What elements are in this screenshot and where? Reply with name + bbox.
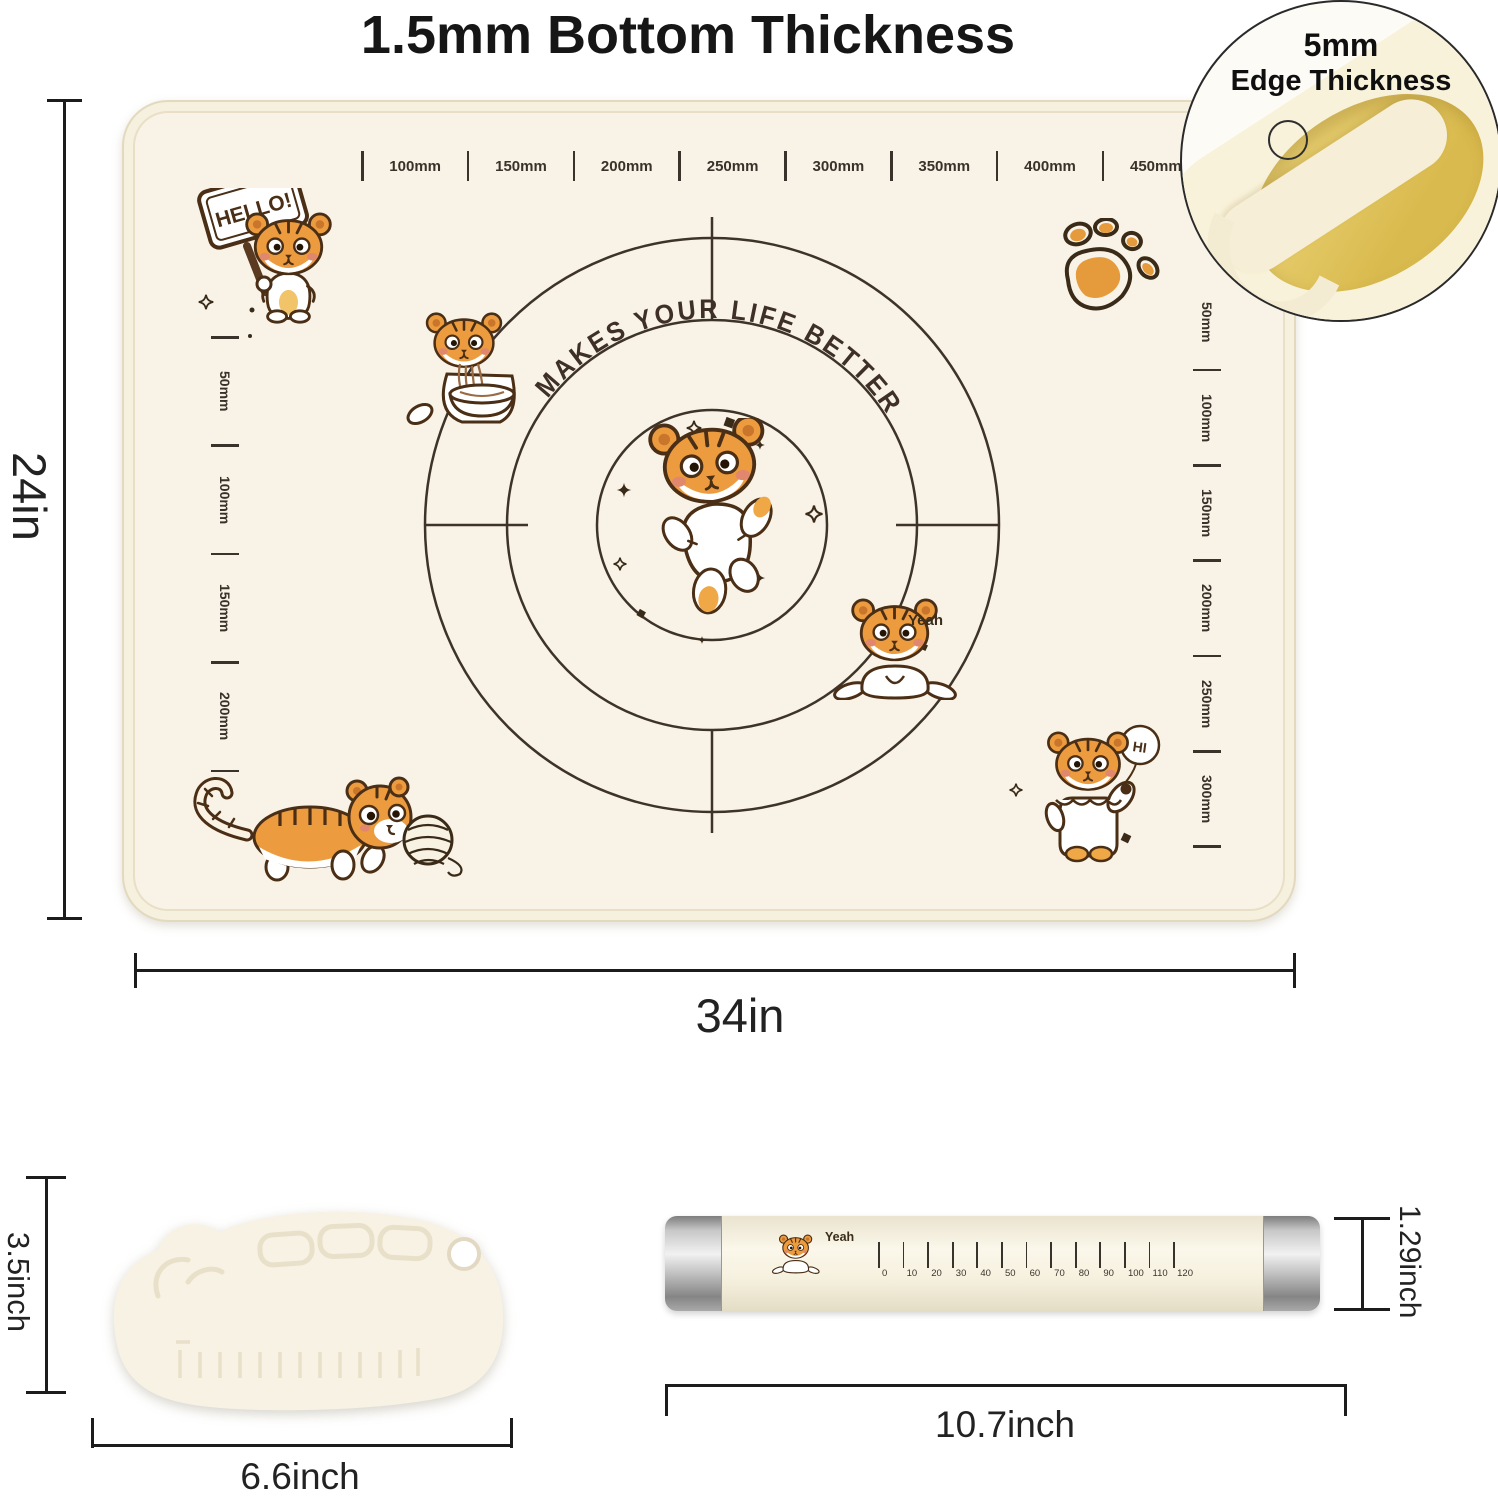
pin-ruler-tick — [1149, 1242, 1151, 1268]
ruler-label: 100mm — [364, 158, 467, 175]
dim-tick — [26, 1391, 66, 1394]
ruler-label: 150mm — [469, 158, 572, 175]
pin-ruler-tick — [1173, 1242, 1175, 1268]
ruler-tick — [1193, 845, 1221, 848]
pin-ruler-unit: 30 — [952, 1242, 977, 1288]
pin-ruler-unit: 100 — [1124, 1242, 1149, 1288]
ruler-label: 300mm — [787, 158, 890, 175]
dim-tick — [47, 917, 82, 920]
pin-ruler-unit: 80 — [1075, 1242, 1100, 1288]
dim-tick — [665, 1384, 668, 1416]
pin-ruler-unit: 0 — [878, 1242, 903, 1288]
pin-ruler-unit: 40 — [976, 1242, 1001, 1288]
ruler-label: 250mm — [681, 158, 784, 175]
mat-ruler-top: 100mm150mm200mm250mm300mm350mm400mm450mm — [361, 151, 1210, 181]
pin-ruler-number: 120 — [1177, 1268, 1193, 1279]
pin-ruler-tick — [903, 1242, 905, 1268]
edge-marker-circle — [1268, 120, 1308, 160]
dim-line-pin-diameter — [1361, 1218, 1364, 1310]
mat-ruler-left: 50mm100mm150mm200mm — [210, 336, 240, 772]
pin-ruler-tick — [1001, 1242, 1003, 1268]
pin-ruler-tick — [1075, 1242, 1077, 1268]
scraper-height-label: 3.5inch — [0, 1232, 36, 1332]
pin-ruler-number: 90 — [1103, 1268, 1114, 1279]
dim-tick — [1344, 1384, 1347, 1416]
pin-ruler-unit: 70 — [1050, 1242, 1075, 1288]
yarn-ball-sticker — [398, 812, 470, 878]
dim-tick — [1293, 953, 1296, 988]
pin-ruler-number: 100 — [1128, 1268, 1144, 1279]
pin-cap-right — [1263, 1216, 1320, 1311]
pin-ruler-unit: 90 — [1099, 1242, 1124, 1288]
dough-scraper — [92, 1192, 514, 1420]
pin-ruler-number: 50 — [1005, 1268, 1016, 1279]
ruler-label: 100mm — [217, 447, 233, 553]
pin-ruler-number: 70 — [1054, 1268, 1065, 1279]
mat-width-label: 34in — [620, 988, 860, 1043]
pin-ruler-number: 40 — [980, 1268, 991, 1279]
dim-tick — [510, 1418, 513, 1448]
dim-tick — [47, 99, 82, 102]
hi-balloon-text: HI — [1132, 738, 1148, 756]
center-tiger-mascot — [640, 418, 790, 626]
pin-ruler-number: 20 — [931, 1268, 942, 1279]
dim-line-pin-length — [666, 1384, 1346, 1387]
walking-tiger-sticker — [185, 775, 430, 885]
dim-tick — [134, 953, 137, 988]
ruler-label: 350mm — [893, 158, 996, 175]
ruler-label: 300mm — [1199, 753, 1215, 846]
paw-print-sticker — [1048, 218, 1163, 324]
pin-ruler-tick — [1099, 1242, 1101, 1268]
page-title: 1.5mm Bottom Thickness — [0, 4, 1376, 66]
pin-diameter-label: 1.29inch — [1392, 1205, 1426, 1318]
pin-ruler-number: 60 — [1030, 1268, 1041, 1279]
mat-height-label: 24in — [2, 452, 57, 541]
ruler-label: 100mm — [1199, 371, 1215, 464]
pin-length-label: 10.7inch — [880, 1404, 1130, 1446]
pin-ruler: 0102030405060708090100110120 — [878, 1242, 1198, 1288]
pin-ruler-unit: 120 — [1173, 1242, 1198, 1288]
pin-body: Yeah 0102030405060708090100110120 — [665, 1216, 1320, 1311]
ruler-label: 250mm — [1199, 657, 1215, 750]
pin-tiger-sticker — [770, 1234, 822, 1279]
dim-tick — [91, 1418, 94, 1448]
ruler-label: 50mm — [217, 339, 233, 445]
dim-tick — [26, 1176, 66, 1179]
ruler-label: 400mm — [998, 158, 1101, 175]
yeah-label: Yeah — [908, 612, 943, 629]
mat-ruler-right: 50mm100mm150mm200mm250mm300mm — [1192, 276, 1222, 848]
pin-ruler-unit: 60 — [1026, 1242, 1051, 1288]
dim-tick — [1334, 1217, 1390, 1220]
pin-ruler-tick — [1124, 1242, 1126, 1268]
hello-tiger-sticker: HELLO! — [185, 188, 360, 350]
pin-ruler-tick — [927, 1242, 929, 1268]
pin-ruler-unit: 20 — [927, 1242, 952, 1288]
pin-cap-left — [665, 1216, 722, 1311]
pin-ruler-tick — [878, 1242, 880, 1268]
pin-ruler-unit: 10 — [903, 1242, 928, 1288]
hi-tiger-sticker: HI — [1020, 715, 1180, 870]
dim-line-scraper-height — [45, 1177, 48, 1393]
dim-tick — [1334, 1308, 1390, 1311]
pin-ruler-number: 80 — [1079, 1268, 1090, 1279]
scraper-width-label: 6.6inch — [190, 1456, 410, 1498]
ruler-label: 200mm — [217, 664, 233, 770]
edge-thickness-inset: 5mm Edge Thickness — [1180, 0, 1498, 322]
ruler-label: 150mm — [217, 555, 233, 661]
pin-yeah-label: Yeah — [825, 1230, 854, 1244]
rolling-pin: Yeah 0102030405060708090100110120 — [665, 1216, 1320, 1311]
dim-line-mat-height — [63, 100, 66, 920]
dim-line-mat-width — [135, 969, 1295, 972]
product-infographic: 1.5mm Bottom Thickness MAKES YOUR LIFE B… — [0, 0, 1498, 1500]
edge-thickness-label: 5mm Edge Thickness — [1182, 26, 1498, 99]
svg-text:MAKES YOUR LIFE BETTER: MAKES YOUR LIFE BETTER — [529, 294, 908, 420]
pin-ruler-tick — [1050, 1242, 1052, 1268]
ruler-label: 150mm — [1199, 467, 1215, 560]
pin-ruler-number: 30 — [956, 1268, 967, 1279]
mat-arc-slogan: MAKES YOUR LIFE BETTER — [529, 294, 908, 420]
noodle-tiger-sticker — [402, 312, 547, 438]
pin-ruler-unit: 110 — [1149, 1242, 1174, 1288]
ruler-tick — [211, 770, 239, 773]
pin-ruler-tick — [952, 1242, 954, 1268]
ruler-label: 200mm — [1199, 562, 1215, 655]
dim-line-scraper-width — [92, 1444, 512, 1447]
pin-ruler-tick — [976, 1242, 978, 1268]
pin-ruler-number: 110 — [1153, 1268, 1168, 1279]
pin-ruler-number: 10 — [907, 1268, 918, 1279]
pin-ruler-number: 0 — [882, 1268, 887, 1279]
pin-ruler-unit: 50 — [1001, 1242, 1026, 1288]
noodle-bowl — [450, 385, 514, 416]
pin-ruler-tick — [1026, 1242, 1028, 1268]
ruler-label: 200mm — [575, 158, 678, 175]
